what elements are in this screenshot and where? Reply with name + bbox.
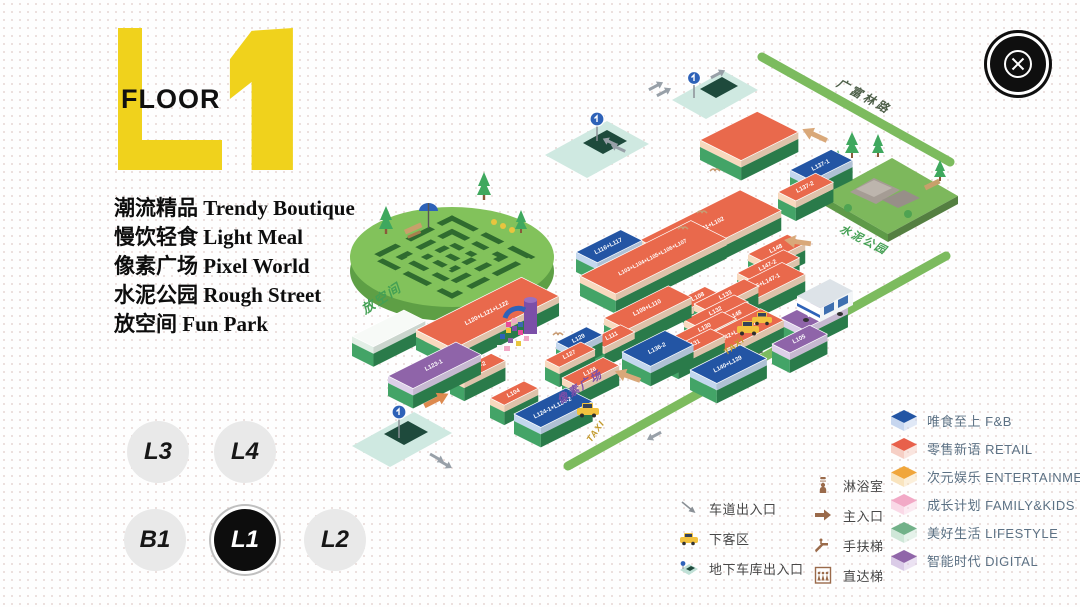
legend-item-label: 智能时代 DIGITAL xyxy=(927,551,1038,570)
legend-item-retail: 零售新语 RETAIL xyxy=(891,437,1080,459)
map-block xyxy=(352,310,425,367)
shower-icon xyxy=(812,475,834,495)
taxi-icon xyxy=(678,528,700,548)
category-cube-icon xyxy=(891,522,917,543)
floor-button-l3[interactable]: L3 xyxy=(127,421,189,483)
elevator-icon xyxy=(812,565,834,585)
facility-legend-col2: 淋浴室 主入口 手扶梯 直达梯 xyxy=(812,474,884,594)
legend-item-entertainment: 次元娱乐 ENTERTAINMENT xyxy=(891,465,1080,487)
legend-item-label: 成长计划 FAMILY&KIDS xyxy=(927,495,1075,514)
category-item: 水泥公园 Rough Street xyxy=(114,281,355,310)
parking-ramp-north-1 xyxy=(545,112,649,178)
tree-icon xyxy=(845,132,859,158)
tree-icon xyxy=(872,134,884,157)
legend-item-label: 美好生活 LIFESTYLE xyxy=(927,523,1058,542)
facility-label: 手扶梯 xyxy=(843,536,884,555)
ball-icon xyxy=(509,227,515,233)
floor-button-b1[interactable]: B1 xyxy=(124,509,186,571)
parking-ramp-north-2 xyxy=(672,71,758,119)
legend-main-entrance: 主入口 xyxy=(812,504,884,526)
floor-button-l1[interactable]: L1 xyxy=(214,509,276,571)
facility-label: 主入口 xyxy=(843,506,884,525)
close-button[interactable] xyxy=(984,30,1052,98)
garage-ramp-icon xyxy=(678,558,700,578)
legend-item-label: 零售新语 RETAIL xyxy=(927,439,1033,458)
facility-label: 淋浴室 xyxy=(843,476,884,495)
goal-frame-icon xyxy=(494,189,512,204)
facility-label: 直达梯 xyxy=(843,566,884,585)
legend-dropoff-zone: 下客区 xyxy=(678,527,804,549)
logo-letter-l xyxy=(118,140,222,170)
category-item: 像素广场 Pixel World xyxy=(114,252,355,281)
close-icon xyxy=(997,43,1039,85)
facility-label: 地下车库出入口 xyxy=(709,559,804,578)
category-cube-icon xyxy=(891,410,917,431)
category-cube-icon xyxy=(891,466,917,487)
legend-item-family-kids: 成长计划 FAMILY&KIDS xyxy=(891,493,1080,515)
category-list: 潮流精品 Trendy Boutique 慢饮轻食 Light Meal 像素广… xyxy=(114,194,355,339)
map-block: L137-2 xyxy=(778,173,833,221)
legend-item-fnb: 唯食至上 F&B xyxy=(891,409,1080,431)
facility-label: 下客区 xyxy=(709,529,750,548)
floor-button-l2[interactable]: L2 xyxy=(304,509,366,571)
facility-label: 车道出入口 xyxy=(709,499,777,518)
ball-icon xyxy=(500,223,506,229)
category-cube-icon xyxy=(891,438,917,459)
legend-item-label: 次元娱乐 ENTERTAINMENT xyxy=(927,467,1080,486)
category-cube-icon xyxy=(891,550,917,571)
escalator-icon xyxy=(812,535,834,555)
legend-item-label: 唯食至上 F&B xyxy=(927,411,1012,430)
bush-icon xyxy=(904,210,912,218)
bush-icon xyxy=(844,204,852,212)
legend-driveway-entrance: 车道出入口 xyxy=(678,497,804,519)
category-legend: 唯食至上 F&B 零售新语 RETAIL 次元娱乐 ENTERTAINMENT … xyxy=(891,409,1080,577)
category-item: 慢饮轻食 Light Meal xyxy=(114,223,355,252)
legend-garage-entrance: 地下车库出入口 xyxy=(678,557,804,579)
legend-shower-room: 淋浴室 xyxy=(812,474,884,496)
logo-floor-text: FLOOR xyxy=(121,84,221,115)
category-item: 潮流精品 Trendy Boutique xyxy=(114,194,355,223)
facility-legend-col1: 车道出入口 下客区 地下车库出入口 xyxy=(678,497,804,587)
legend-elevator: 直达梯 xyxy=(812,564,884,586)
legend-item-digital: 智能时代 DIGITAL xyxy=(891,549,1080,571)
category-item: 放空间 Fun Park xyxy=(114,310,355,339)
tree-icon xyxy=(477,172,491,200)
floor-button-l4[interactable]: L4 xyxy=(214,421,276,483)
driveway-arrow-icon xyxy=(678,498,700,518)
ball-icon xyxy=(491,219,497,225)
legend-escalator: 手扶梯 xyxy=(812,534,884,556)
legend-item-lifestyle: 美好生活 LIFESTYLE xyxy=(891,521,1080,543)
entrance-arrow-icon xyxy=(812,505,834,525)
category-cube-icon xyxy=(891,494,917,515)
